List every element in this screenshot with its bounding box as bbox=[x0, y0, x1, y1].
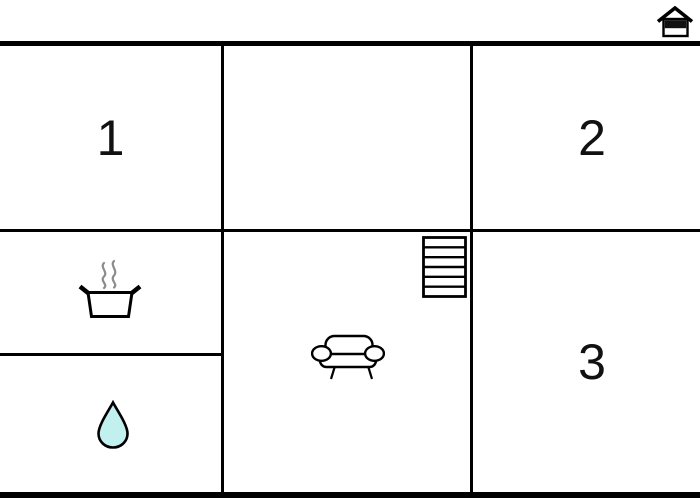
wall-vertical-left bbox=[221, 46, 224, 492]
floor-plan: 1 2 3 bbox=[0, 0, 700, 500]
sofa-armrest-left bbox=[312, 346, 331, 361]
steam-line-right bbox=[113, 261, 116, 288]
wall-bottom-thick bbox=[0, 492, 700, 498]
house-band bbox=[665, 20, 686, 28]
wall-kitchen-bathroom bbox=[0, 353, 221, 356]
sofa-armrest-right bbox=[365, 346, 384, 361]
house-icon bbox=[656, 6, 694, 38]
water-drop-icon bbox=[94, 400, 132, 450]
sofa-icon bbox=[311, 333, 385, 383]
cooking-pot-icon bbox=[78, 258, 142, 319]
pot-body bbox=[88, 293, 132, 317]
room-1-label: 1 bbox=[0, 46, 221, 229]
room-3-label: 3 bbox=[473, 232, 700, 492]
steam-line-left bbox=[103, 263, 106, 288]
water-drop-shape bbox=[99, 403, 128, 448]
stairs-icon bbox=[422, 236, 467, 298]
room-2-label: 2 bbox=[473, 46, 700, 229]
